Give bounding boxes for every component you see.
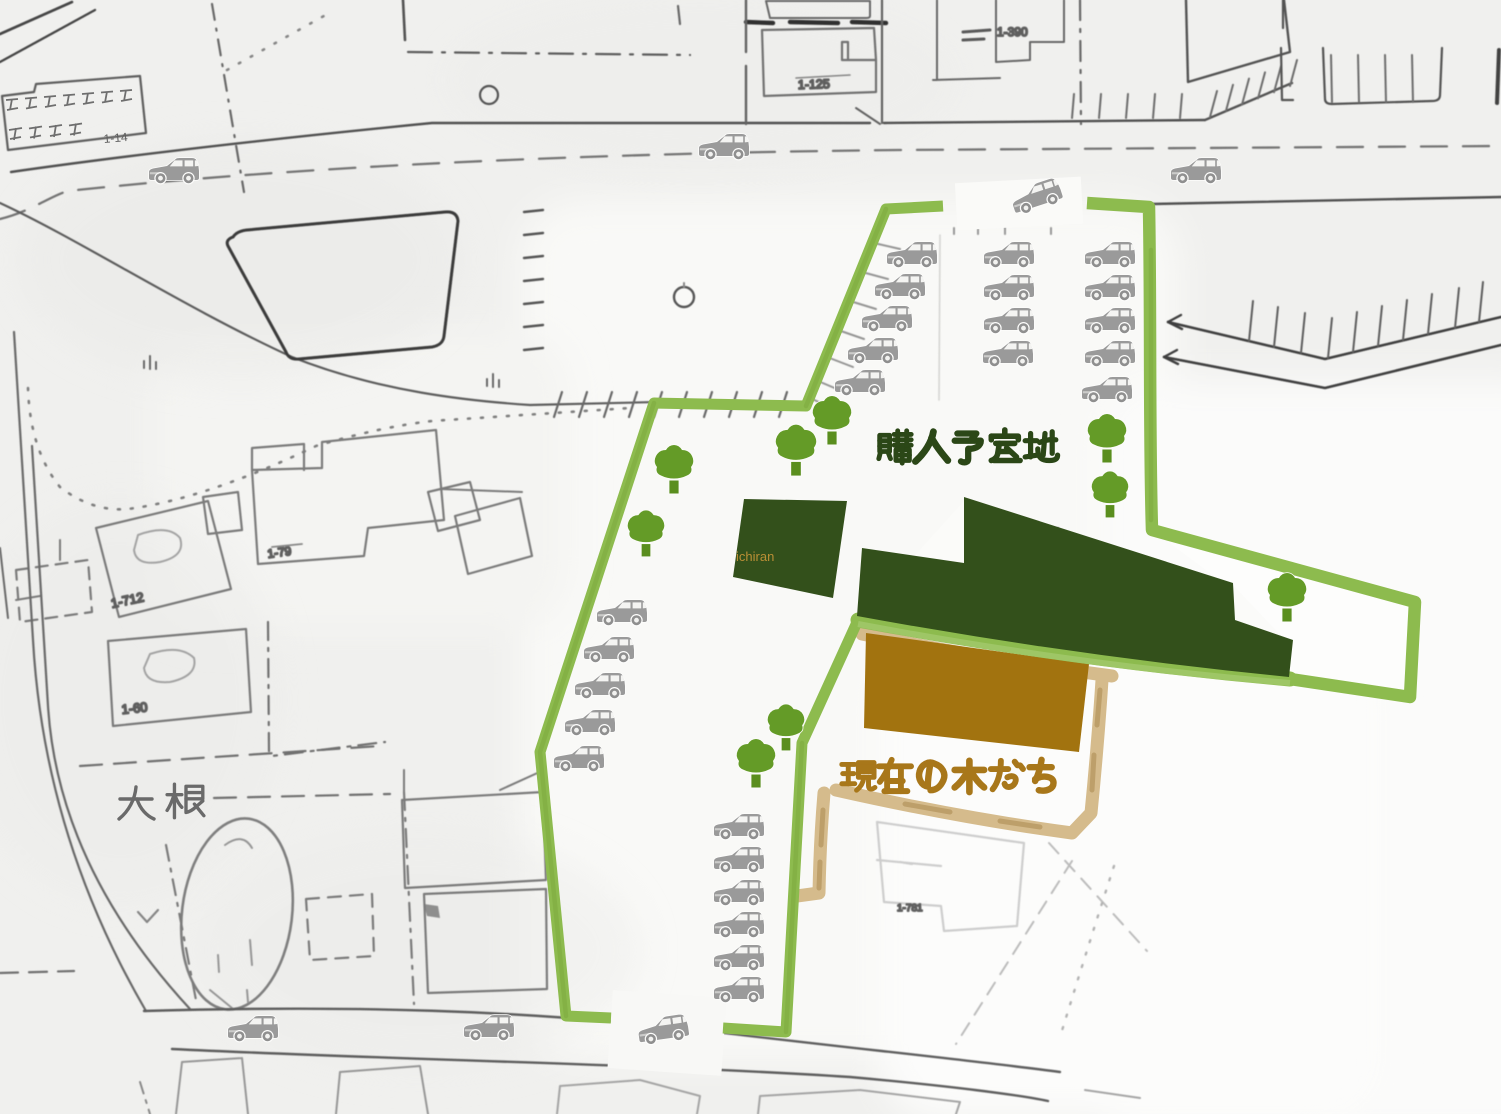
- svg-text:1-60: 1-60: [121, 699, 148, 717]
- svg-text:1-781: 1-781: [897, 903, 923, 914]
- svg-text:ichiran: ichiran: [736, 549, 774, 564]
- svg-text:1-125: 1-125: [798, 77, 830, 92]
- svg-text:1-390: 1-390: [997, 25, 1028, 39]
- svg-text:1-14: 1-14: [103, 130, 128, 146]
